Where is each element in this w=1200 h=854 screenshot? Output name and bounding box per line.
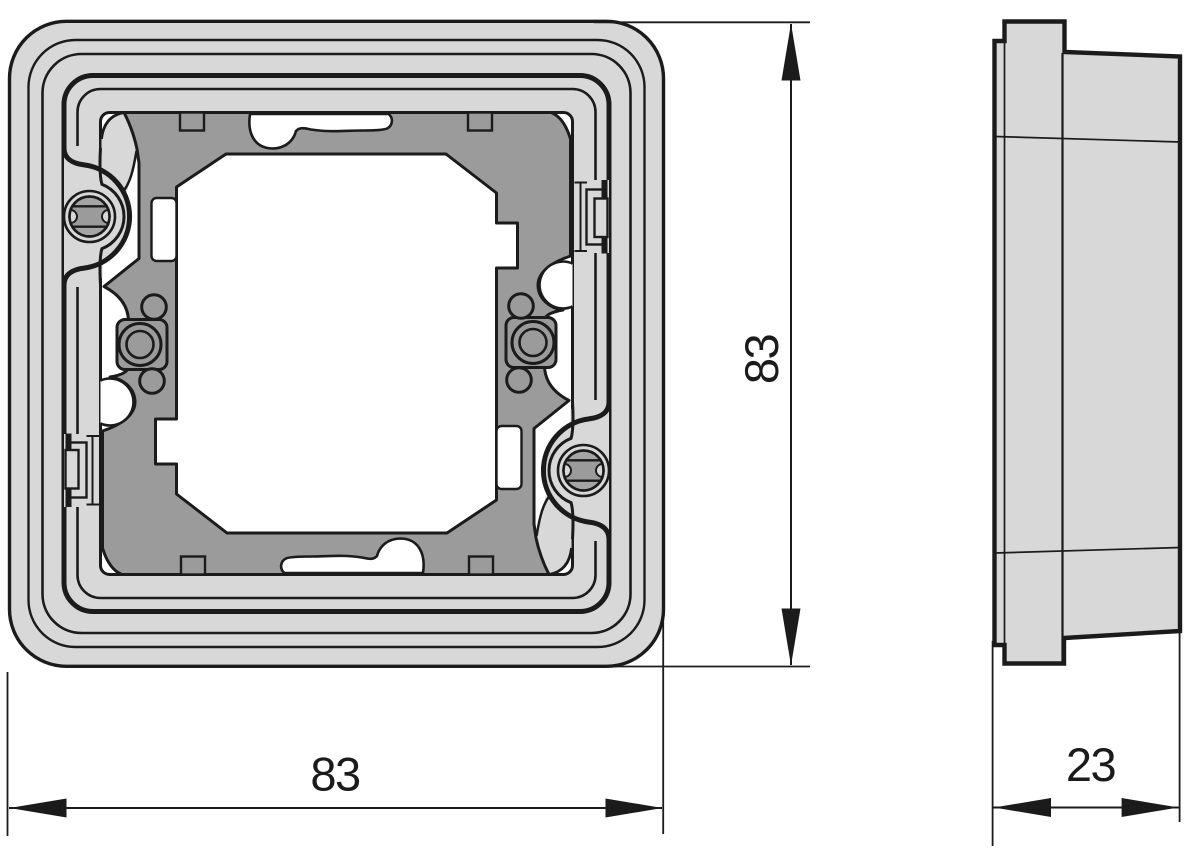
svg-text:23: 23 bbox=[1066, 738, 1116, 791]
svg-text:83: 83 bbox=[735, 335, 788, 385]
svg-text:83: 83 bbox=[310, 748, 360, 801]
